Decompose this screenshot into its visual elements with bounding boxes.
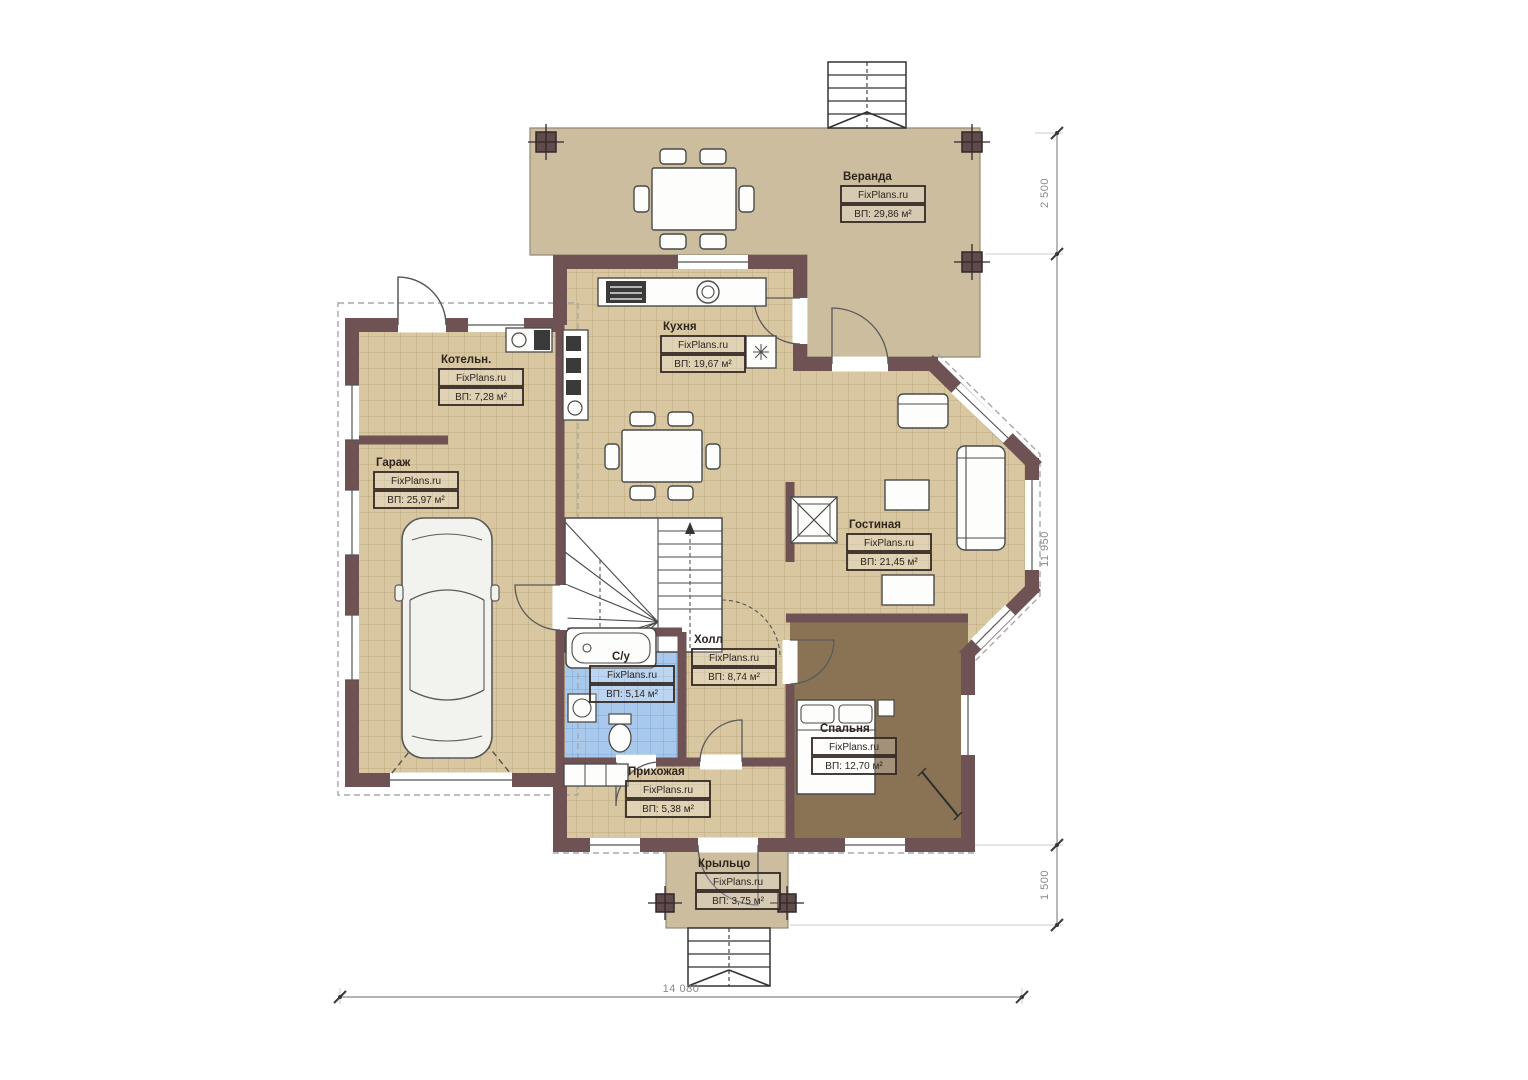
- room-name: Гараж: [376, 457, 411, 469]
- room-area: ВП: 19,67 м²: [674, 359, 732, 370]
- coffee-table: [885, 480, 929, 510]
- dimension-bottom: 14 080: [334, 983, 1028, 1004]
- dim-porch-depth: 1 500: [1039, 870, 1051, 900]
- room-name: Прихожая: [628, 766, 685, 778]
- floor-plan: 2 500 11 950 1 500 14 080 Веранда FixPla…: [0, 0, 1528, 1080]
- room-name: Спальня: [820, 723, 870, 735]
- dim-house-depth: 11 950: [1039, 531, 1051, 567]
- room-name: С/у: [612, 651, 631, 663]
- toilet: [609, 714, 631, 724]
- room-name: Холл: [694, 634, 723, 646]
- room-area: ВП: 29,86 м²: [854, 209, 912, 220]
- sofa: [957, 446, 1005, 550]
- cooktop: [606, 281, 646, 303]
- watermark: FixPlans.ru: [391, 476, 441, 487]
- kitchen-sink: [697, 281, 719, 303]
- floor-plan-canvas: 2 500 11 950 1 500 14 080 Веранда FixPla…: [0, 0, 1528, 1080]
- tv-stand: [882, 575, 934, 605]
- room-name: Котельн.: [441, 354, 491, 366]
- watermark: FixPlans.ru: [858, 190, 908, 201]
- room-area: ВП: 25,97 м²: [387, 495, 445, 506]
- room-name: Крыльцо: [698, 858, 750, 870]
- watermark: FixPlans.ru: [678, 340, 728, 351]
- room-area: ВП: 12,70 м²: [825, 761, 883, 772]
- fridge-icon: [753, 344, 769, 360]
- room-name: Веранда: [843, 171, 892, 183]
- watermark: FixPlans.ru: [456, 373, 506, 384]
- car: [395, 518, 499, 758]
- boiler-equipment: [506, 328, 552, 352]
- room-area: ВП: 5,38 м²: [642, 804, 695, 815]
- dim-house-width: 14 080: [663, 983, 700, 995]
- dim-veranda-depth: 2 500: [1039, 178, 1051, 208]
- room-area: ВП: 3,75 м²: [712, 896, 765, 907]
- porch-staircase: [688, 928, 770, 986]
- watermark: FixPlans.ru: [607, 670, 657, 681]
- veranda-staircase: [828, 62, 906, 128]
- watermark: FixPlans.ru: [713, 877, 763, 888]
- watermark: FixPlans.ru: [643, 785, 693, 796]
- watermark: FixPlans.ru: [829, 742, 879, 753]
- room-area: ВП: 21,45 м²: [860, 557, 918, 568]
- room-name: Кухня: [663, 321, 697, 333]
- watermark: FixPlans.ru: [709, 653, 759, 664]
- entry-hall-cabinet: [564, 764, 628, 786]
- room-area: ВП: 5,14 м²: [606, 689, 659, 700]
- room-area: ВП: 7,28 м²: [455, 392, 508, 403]
- room-area: ВП: 8,74 м²: [708, 672, 761, 683]
- nightstand: [878, 700, 894, 716]
- room-name: Гостиная: [849, 519, 901, 531]
- watermark: FixPlans.ru: [864, 538, 914, 549]
- armchair: [898, 394, 948, 428]
